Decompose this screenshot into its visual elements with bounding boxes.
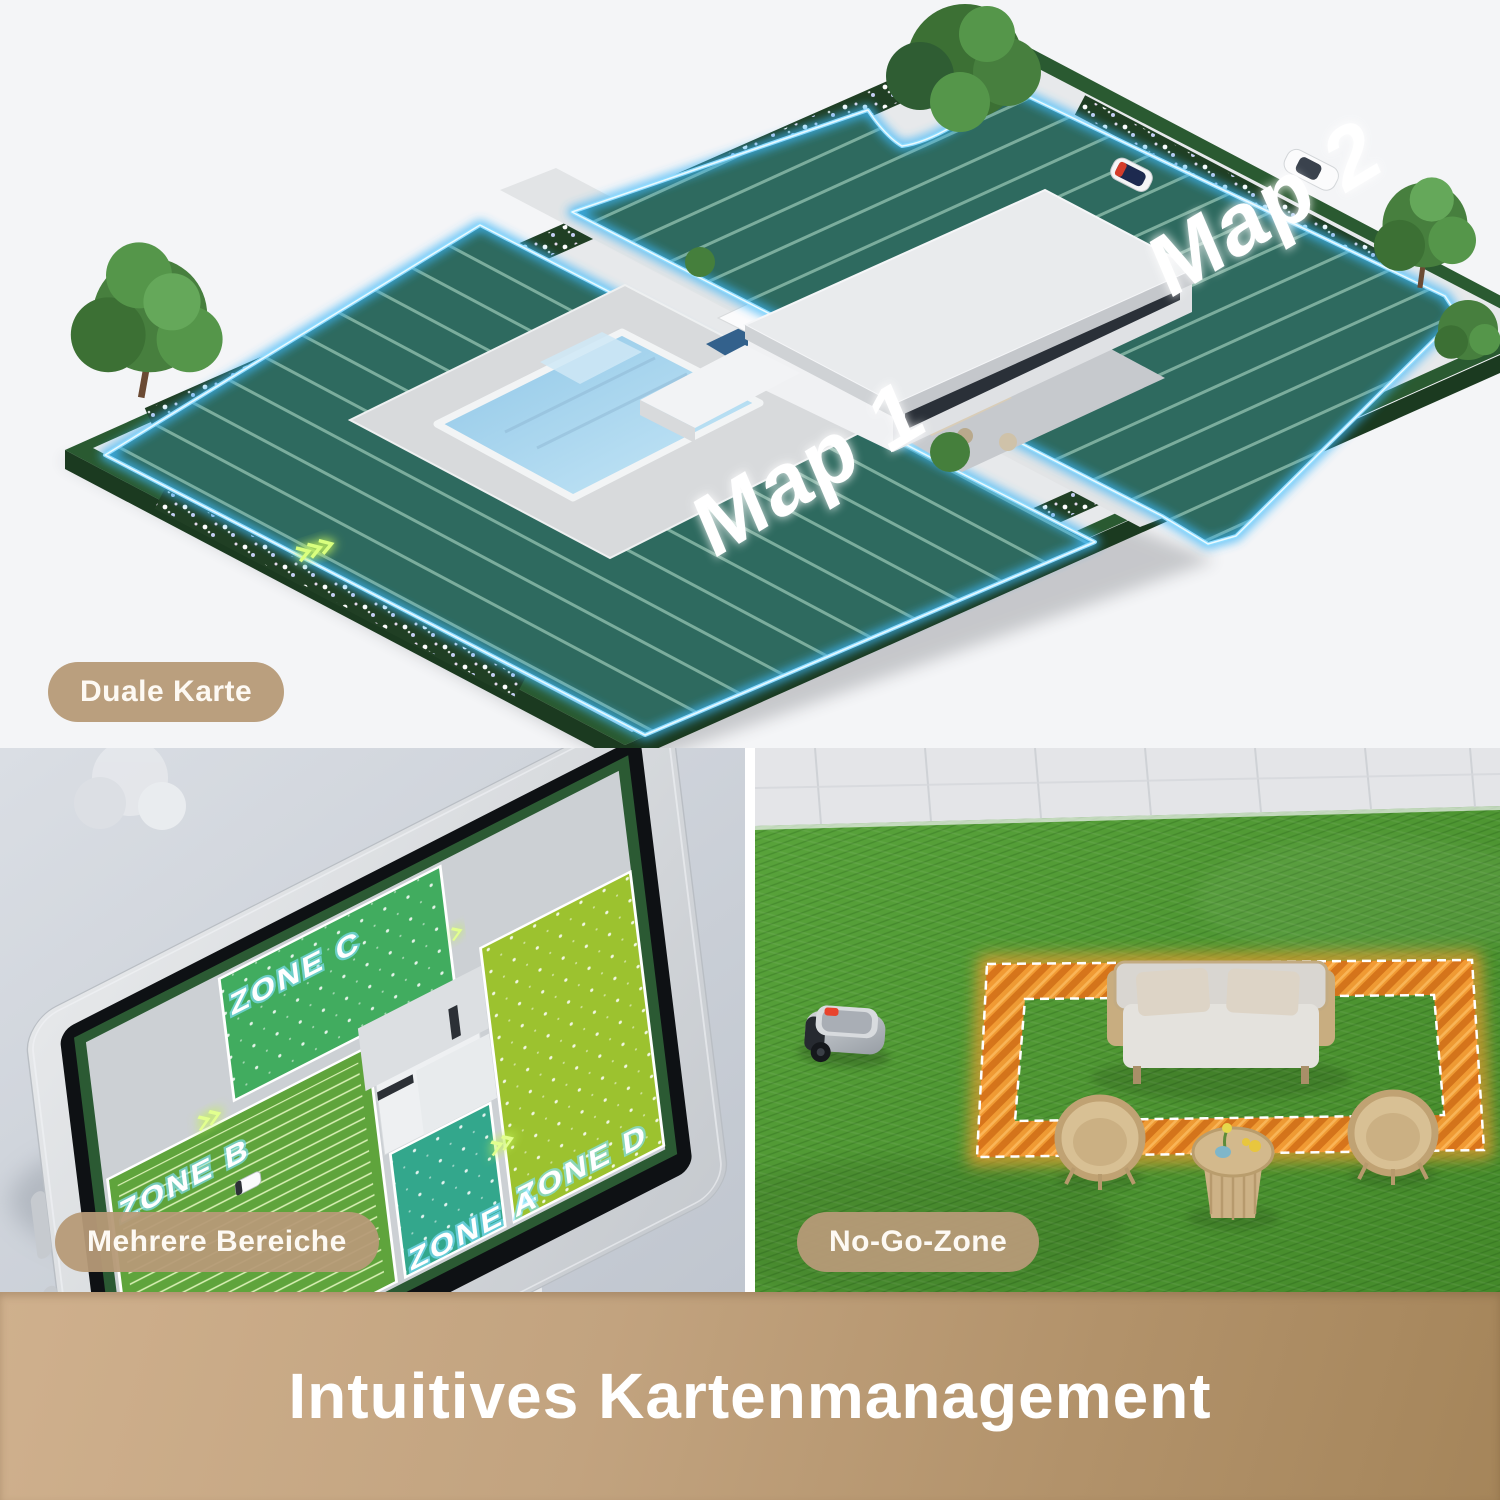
cushion (1136, 968, 1211, 1017)
dual-map-panel: Map 1 Map 1 Map 2 Map 2 Duale Karte (0, 0, 1500, 748)
no-go-zone-badge: No-Go-Zone (797, 1212, 1039, 1272)
no-go-scene (755, 748, 1500, 1292)
multi-zone-badge: Mehrere Bereiche (55, 1212, 379, 1272)
banner-title: Intuitives Kartenmanagement (288, 1359, 1211, 1433)
banner: Intuitives Kartenmanagement (0, 1292, 1500, 1500)
wicker-chair (1056, 1098, 1144, 1190)
cushion (1226, 968, 1300, 1016)
marketing-image: Map 1 Map 1 Map 2 Map 2 Duale Karte (0, 0, 1500, 1500)
wicker-chair (1349, 1093, 1437, 1187)
outdoor-chair (999, 433, 1017, 451)
vase (1215, 1146, 1231, 1158)
garden-sofa (1091, 962, 1351, 1100)
flowers (1249, 1140, 1261, 1152)
flowers (1222, 1123, 1232, 1133)
bush (930, 432, 970, 472)
multi-zone-panel: ZONE C ZONE B ZONE D ZONE A Mehrere Bere… (0, 748, 745, 1292)
dual-map-badge: Duale Karte (48, 662, 284, 722)
multi-zone-scene: ZONE C ZONE B ZONE D ZONE A (0, 748, 745, 1292)
bush (685, 247, 715, 277)
robot-accent (824, 1007, 839, 1016)
dual-map-scene: Map 1 Map 1 Map 2 Map 2 (0, 0, 1500, 748)
no-go-zone-panel: No-Go-Zone (755, 748, 1500, 1292)
